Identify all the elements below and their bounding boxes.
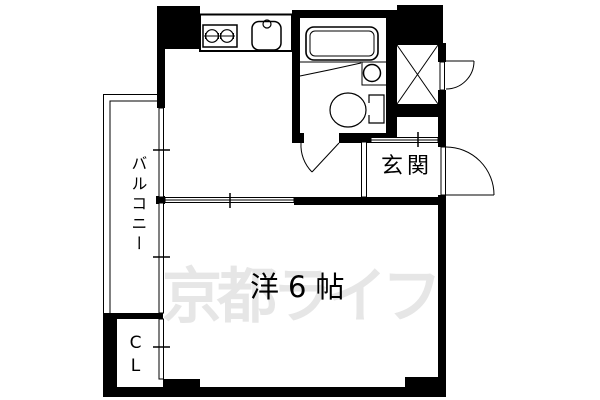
counter-outline: [200, 15, 292, 52]
bathroom-door: [301, 143, 339, 172]
balcony-label: バルコニー: [128, 155, 146, 275]
entrance-door: [441, 147, 494, 195]
closet-label: CL: [125, 333, 145, 383]
wall-right-upper: [438, 43, 446, 62]
main-room-label: 洋6帖: [250, 271, 353, 304]
balcony-window-upper: [159, 108, 164, 197]
balcony-window-lower: [159, 203, 164, 313]
column-bottom-right: [405, 377, 438, 388]
wall-left: [157, 6, 165, 108]
entrance-label: 玄関: [381, 154, 433, 179]
wall-closet-left: [103, 313, 117, 397]
wall-right-mid: [438, 90, 446, 147]
bathroom-door-opening: [304, 133, 339, 144]
elevator-shaft-icon: [397, 45, 438, 104]
wall-closet-top: [103, 313, 163, 319]
kitchen-counter: [200, 15, 292, 52]
floor-plan-drawing: [0, 0, 600, 400]
wall-below-elevator: [390, 104, 446, 117]
wall-bottom: [103, 387, 446, 397]
bathroom: [292, 10, 397, 144]
floor-plan: 京都ライフ: [0, 0, 600, 400]
closet-door: [159, 319, 164, 379]
windows: [159, 108, 438, 379]
column-bottom-left: [163, 379, 200, 388]
wall-right-lower: [438, 195, 446, 397]
wall-top-right-block: [397, 5, 443, 45]
entrance-partition: [362, 142, 367, 197]
wall-partition: [294, 197, 446, 205]
elevator-door: [440, 61, 474, 90]
tick-marks: [153, 132, 418, 347]
